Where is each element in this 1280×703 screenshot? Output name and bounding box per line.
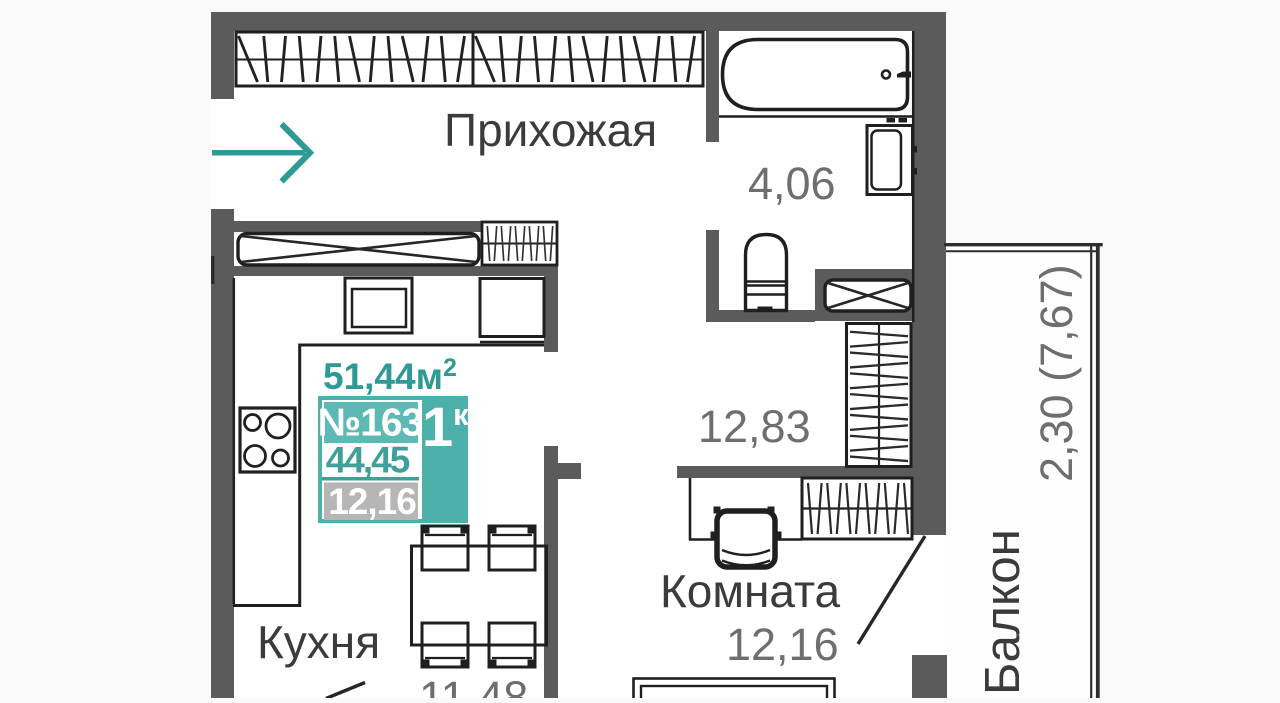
svg-text:Балкон: Балкон (975, 529, 1030, 695)
svg-text:12,83: 12,83 (698, 401, 811, 452)
svg-text:11,48: 11,48 (419, 672, 528, 698)
svg-text:2,30 (7,67): 2,30 (7,67) (1031, 264, 1082, 482)
svg-text:12,16: 12,16 (726, 619, 839, 670)
svg-text:12,16: 12,16 (328, 481, 416, 522)
svg-text:44,45: 44,45 (326, 440, 410, 481)
svg-text:51,44м2: 51,44м2 (323, 354, 457, 397)
svg-text:Комната: Комната (660, 565, 841, 617)
svg-text:№163: №163 (318, 402, 423, 445)
svg-text:Прихожая: Прихожая (444, 104, 657, 156)
svg-text:Кухня: Кухня (257, 616, 380, 668)
svg-text:4,06: 4,06 (748, 158, 836, 209)
